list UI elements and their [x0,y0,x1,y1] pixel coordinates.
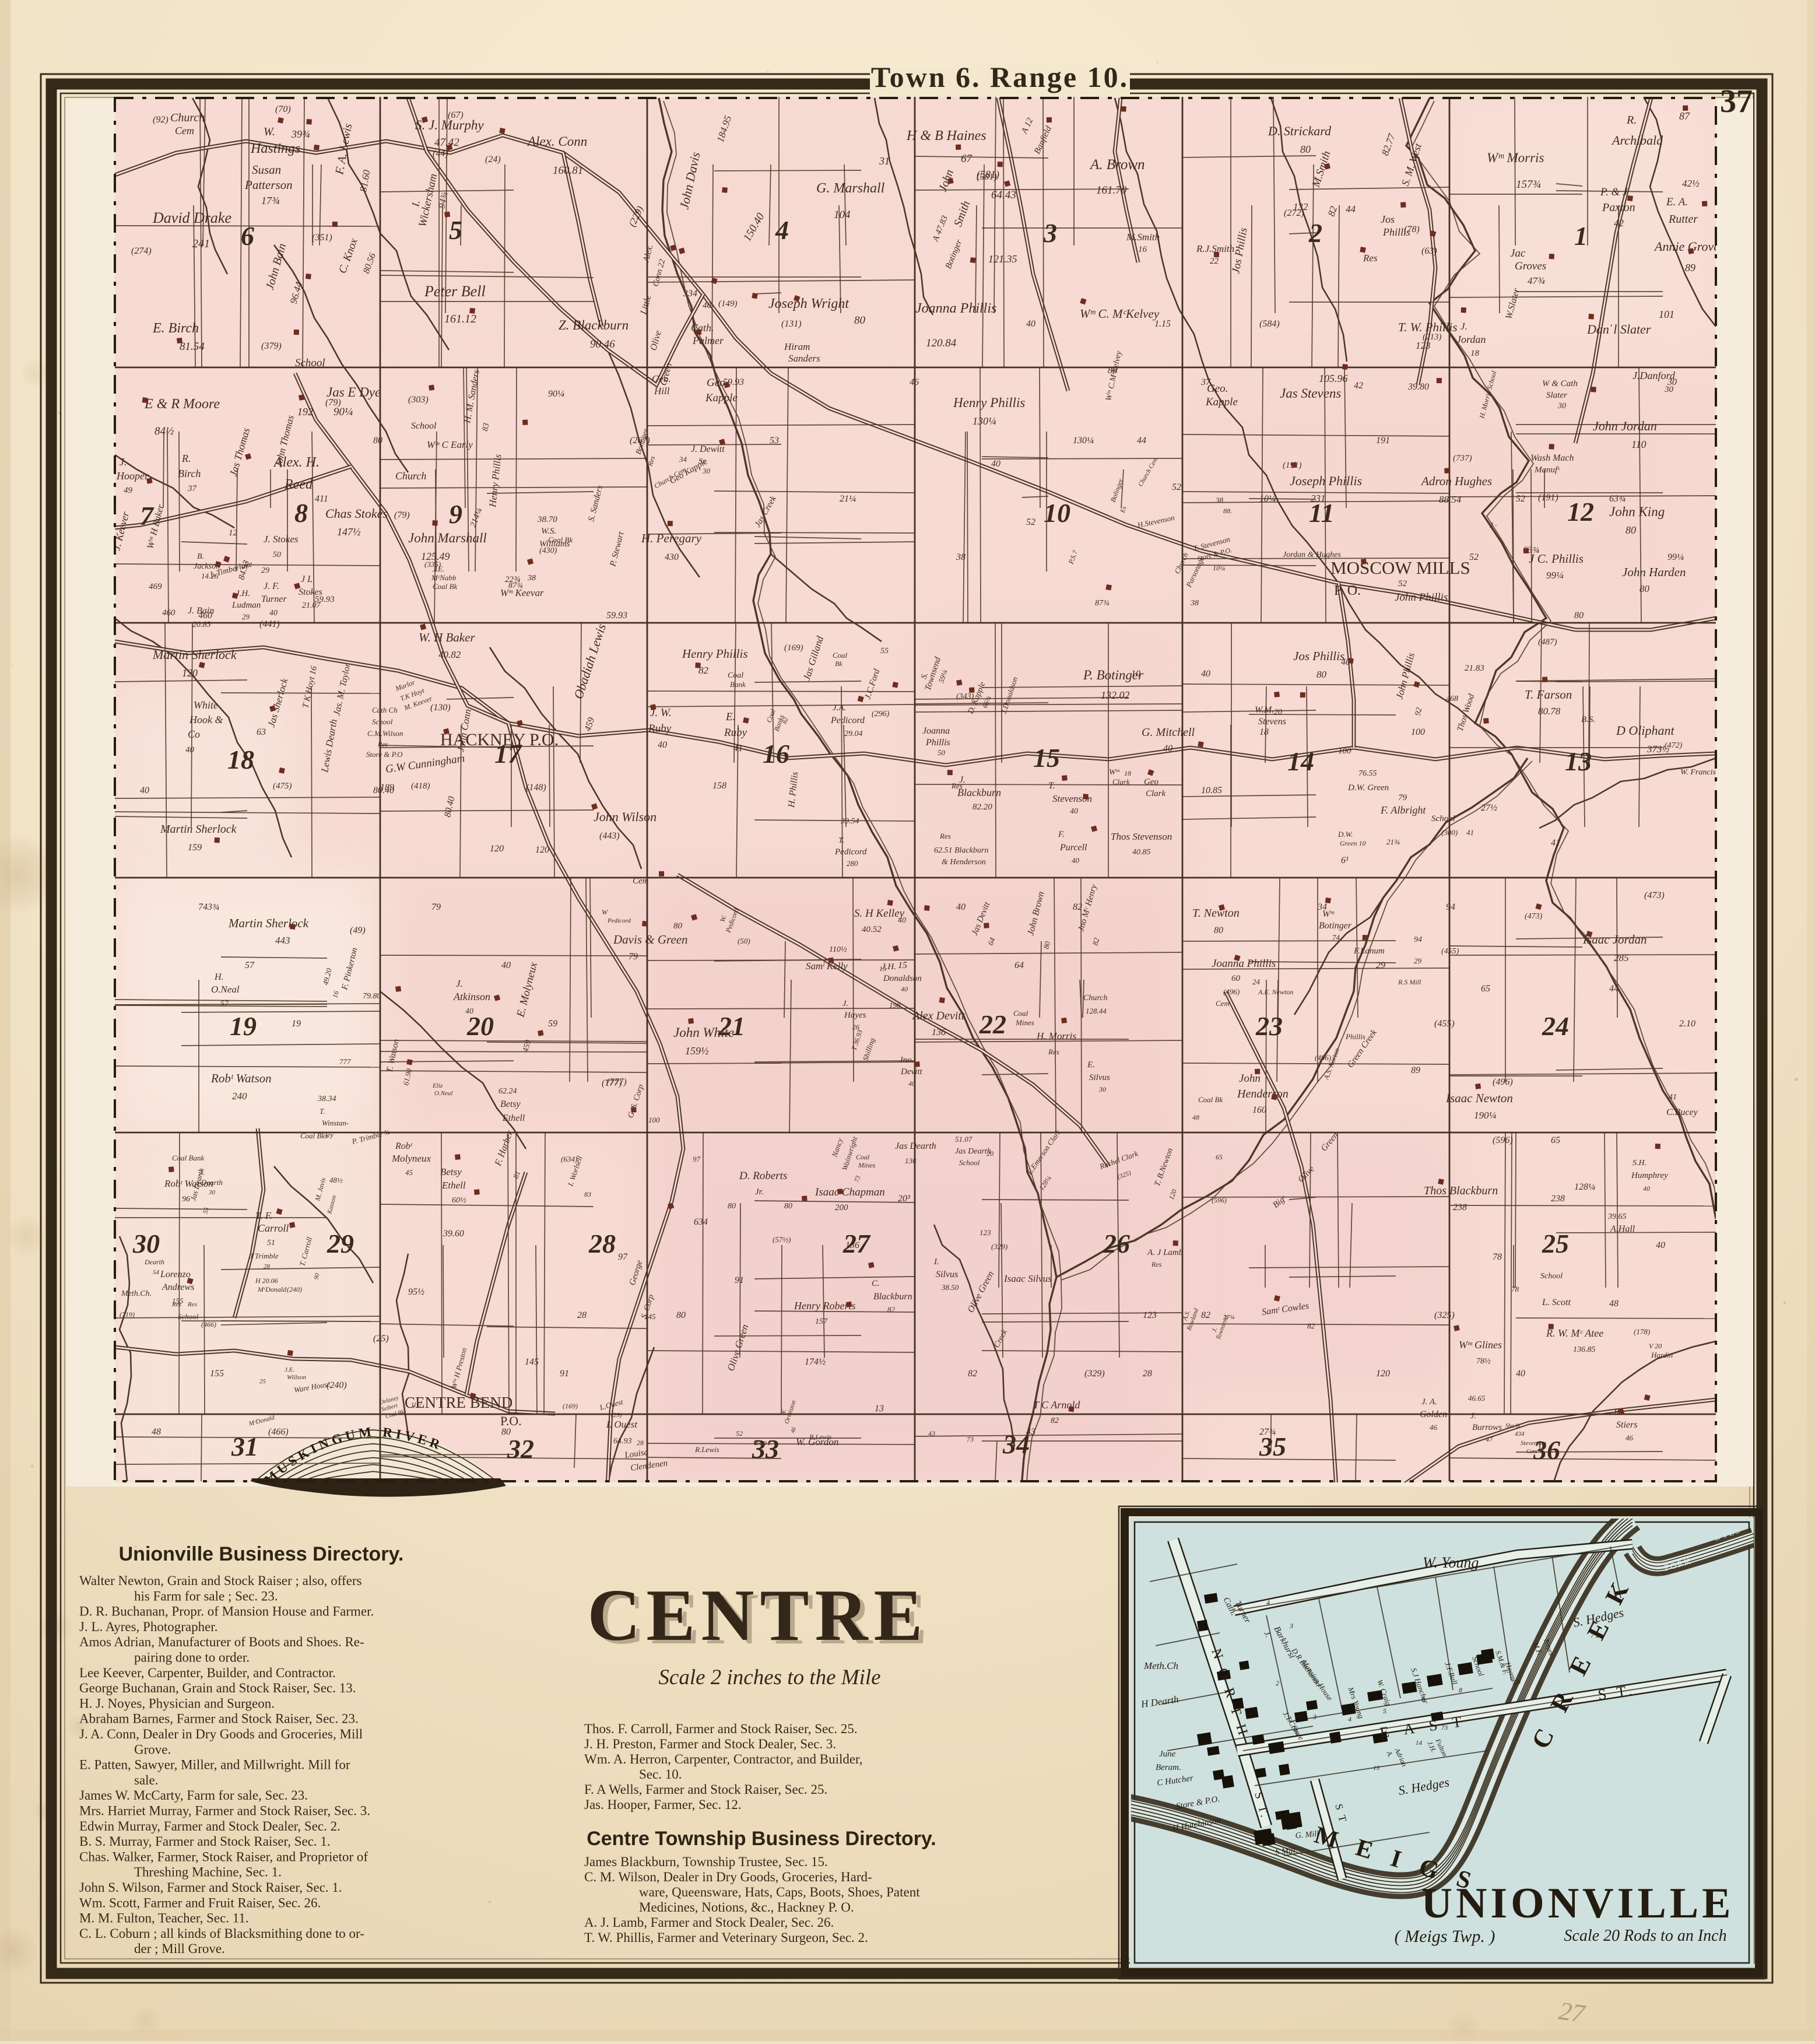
svg-text:62.51 Blackburn: 62.51 Blackburn [934,846,988,855]
svg-text:W.: W. [264,125,275,138]
svg-text:4: 4 [775,215,789,245]
svg-text:16: 16 [763,739,789,769]
svg-text:15: 15 [1033,743,1060,773]
svg-text:C.: C. [872,1279,880,1288]
svg-text:100: 100 [648,1116,660,1124]
svg-text:3: 3 [1312,1713,1317,1721]
svg-text:59: 59 [548,1019,557,1029]
svg-text:80: 80 [1317,669,1327,680]
svg-text:39¾: 39¾ [291,128,310,140]
svg-text:120: 120 [182,667,198,679]
svg-text:104: 104 [834,209,851,221]
svg-text:Cem: Cem [633,876,649,886]
svg-text:John King: John King [1609,504,1665,519]
svg-text:160: 160 [1252,1105,1266,1115]
svg-text:R.Lewis: R.Lewis [694,1445,719,1454]
svg-text:Town 6. Range 10.: Town 6. Range 10. [871,61,1129,93]
svg-text:51.07: 51.07 [955,1135,973,1144]
svg-text:14: 14 [1287,746,1314,776]
svg-text:Jas Stevens: Jas Stevens [1280,386,1341,401]
svg-text:(325): (325) [1434,1310,1455,1320]
svg-text:8: 8 [294,498,308,528]
svg-text:29: 29 [327,1229,354,1258]
svg-text:Chas Stokes: Chas Stokes [325,506,388,521]
svg-text:J.: J. [1461,321,1468,332]
svg-text:P. & J: P. & J [1600,186,1628,198]
svg-text:157¾: 157¾ [1516,178,1541,191]
svg-text:136: 136 [932,1028,946,1037]
svg-text:19: 19 [292,1019,301,1029]
svg-text:Hooper: Hooper [116,470,149,482]
svg-text:54: 54 [153,1269,160,1276]
svg-text:38.70: 38.70 [537,515,557,524]
svg-text:J.: J. [120,456,127,468]
svg-text:(475): (475) [273,781,292,791]
svg-text:W. Young: W. Young [1423,1554,1479,1571]
svg-text:136: 136 [905,1156,917,1165]
svg-text:80.40: 80.40 [373,786,394,795]
svg-text:40.82: 40.82 [438,649,461,660]
svg-text:J.A.: J.A. [833,703,846,713]
svg-text:8: 8 [1459,1686,1462,1694]
svg-text:(44): (44) [433,149,448,159]
svg-text:80: 80 [676,1310,686,1320]
svg-text:48: 48 [1192,1113,1199,1121]
svg-text:(737): (737) [1453,454,1472,463]
svg-text:48½: 48½ [329,1176,343,1184]
svg-text:Martin Sherlock: Martin Sherlock [152,647,237,662]
svg-text:Henry Roberts: Henry Roberts [794,1300,855,1312]
svg-text:91: 91 [560,1369,569,1379]
svg-text:J.H.: J.H. [236,589,250,598]
svg-text:Threshing Machine, Sec. 1.: Threshing Machine, Sec. 1. [134,1865,282,1880]
svg-text:40: 40 [1070,807,1078,816]
svg-text:64.43: 64.43 [991,189,1016,201]
svg-text:743¾: 743¾ [198,902,219,912]
svg-text:Grove.: Grove. [134,1742,171,1756]
svg-text:Patterson: Patterson [244,178,293,192]
svg-text:430: 430 [665,552,679,562]
svg-text:123: 123 [1143,1310,1157,1320]
svg-text:40: 40 [901,985,908,993]
svg-text:Mrs. Harriet Murray, Farmer an: Mrs. Harriet Murray, Farmer and Stock Ra… [79,1804,370,1818]
svg-text:Thos Stevenson: Thos Stevenson [1111,831,1172,842]
svg-text:42½: 42½ [1682,178,1700,189]
svg-text:136: 136 [845,1240,859,1250]
svg-text:1: 1 [1574,221,1588,251]
svg-text:110½: 110½ [829,945,847,954]
svg-text:40: 40 [1026,319,1035,329]
svg-text:240: 240 [232,1091,247,1102]
svg-text:80: 80 [784,1202,792,1211]
svg-text:10: 10 [1044,498,1070,528]
svg-text:Coal: Coal [856,1153,870,1161]
svg-text:Isaac Jordan: Isaac Jordan [1582,932,1647,946]
svg-text:18: 18 [1124,769,1131,777]
svg-text:28: 28 [264,1263,271,1270]
svg-text:18: 18 [1470,349,1480,358]
svg-text:A. J Lamb: A. J Lamb [1147,1248,1184,1257]
svg-text:157: 157 [815,1317,828,1326]
svg-text:Wm. A. Herron, Carpenter, Cont: Wm. A. Herron, Carpenter, Contractor, an… [584,1752,863,1766]
svg-text:31: 31 [231,1432,258,1461]
svg-text:60½: 60½ [452,1196,466,1205]
svg-text:P. O.: P. O. [1334,583,1361,598]
svg-text:100: 100 [1411,727,1425,737]
svg-text:Hardin: Hardin [1651,1351,1673,1359]
svg-text:pairing done to order.: pairing done to order. [134,1650,250,1665]
svg-text:Res: Res [1151,1260,1162,1268]
svg-text:Dearth: Dearth [144,1258,164,1266]
svg-text:J. H. Preston, Farmer and Stoc: J. H. Preston, Farmer and Stock Dealer, … [584,1737,836,1751]
svg-text:A. Brown: A. Brown [1089,157,1145,173]
svg-text:90¼: 90¼ [333,406,353,418]
svg-text:Davis & Green: Davis & Green [613,932,688,946]
svg-text:School: School [1540,1272,1563,1281]
svg-text:32: 32 [507,1434,534,1464]
svg-text:MᶜDonald: MᶜDonald [257,1285,287,1293]
svg-text:128¼: 128¼ [1574,1182,1595,1192]
svg-text:Carroll: Carroll [258,1222,289,1234]
svg-text:Pedicord: Pedicord [834,847,867,857]
svg-text:S Mill: S Mill [1275,1846,1296,1857]
svg-text:46: 46 [1626,1433,1634,1442]
svg-text:F.: F. [1058,830,1065,839]
svg-text:4: 4 [1266,1598,1270,1607]
svg-text:J.H.: J.H. [882,962,896,972]
svg-text:Jordan & Hughes: Jordan & Hughes [1283,551,1341,559]
svg-text:E & R Moore: E & R Moore [144,397,220,412]
svg-text:27¾: 27¾ [1259,1427,1276,1437]
svg-text:174½: 174½ [805,1357,826,1367]
svg-text:(79): (79) [325,398,341,408]
svg-text:Birch: Birch [178,468,201,479]
svg-text:John White: John White [673,1025,734,1040]
svg-text:101: 101 [1659,308,1674,320]
svg-text:Martin Sherlock: Martin Sherlock [228,916,309,930]
svg-text:(379): (379) [261,341,282,351]
svg-text:82: 82 [1073,902,1082,912]
svg-text:28: 28 [588,1229,616,1258]
svg-text:Donaldson: Donaldson [883,974,922,983]
svg-text:37: 37 [1200,377,1211,387]
svg-text:Ethell: Ethell [502,1113,525,1123]
svg-text:(272): (272) [1284,208,1304,218]
svg-text:20.85: 20.85 [192,620,211,629]
svg-text:82: 82 [1201,1310,1210,1320]
svg-text:80: 80 [728,1202,736,1211]
svg-text:121.35: 121.35 [988,253,1017,265]
svg-text:June: June [1159,1750,1176,1759]
svg-text:130¼: 130¼ [1073,436,1094,446]
svg-text:411: 411 [315,494,328,504]
svg-text:S. H Kelley: S. H Kelley [854,907,905,920]
svg-text:J L: J L [301,574,313,584]
svg-text:460: 460 [198,611,212,620]
svg-text:F.Lanum: F.Lanum [1353,946,1385,956]
svg-text:120: 120 [1376,1369,1390,1379]
svg-text:334: 334 [683,289,697,299]
svg-text:42: 42 [1354,381,1363,391]
svg-text:Sanders: Sanders [788,353,820,364]
svg-text:James Blackburn, Township Trus: James Blackburn, Township Trustee, Sec. … [584,1854,828,1869]
svg-text:Medicines, Notions, &c., Hackn: Medicines, Notions, &c., Hackney P. O. [639,1900,854,1915]
svg-text:John S. Wilson, Farmer and Sto: John S. Wilson, Farmer and Stock Raiser,… [79,1880,342,1895]
svg-text:Ruby: Ruby [724,727,747,739]
svg-text:B. S. Murray, Farmer and Stock: B. S. Murray, Farmer and Stock Raiser, S… [79,1834,331,1849]
svg-text:21¼: 21¼ [840,494,856,504]
svg-text:(473): (473) [1644,890,1665,900]
svg-text:R.: R. [181,453,191,464]
svg-text:Kapple: Kapple [705,392,738,404]
svg-text:R. W. Mᶜ Atee: R. W. Mᶜ Atee [1546,1327,1603,1339]
svg-text:2: 2 [1276,1679,1279,1687]
svg-text:40: 40 [185,745,195,755]
svg-text:30: 30 [1098,1085,1106,1093]
svg-text:Ruby: Ruby [648,723,672,735]
svg-text:81.54: 81.54 [180,341,205,353]
svg-text:(274): (274) [131,246,152,256]
svg-text:Robᵗ: Robᵗ [395,1141,413,1151]
svg-text:Isaac Silvus: Isaac Silvus [1003,1273,1052,1284]
svg-text:Clark: Clark [1146,789,1166,798]
svg-text:39.65: 39.65 [1607,1212,1627,1221]
svg-text:4: 4 [1348,1715,1351,1723]
svg-text:198: 198 [889,1001,901,1009]
svg-text:Res: Res [1048,1047,1059,1056]
svg-text:12: 12 [1567,497,1594,527]
svg-text:57: 57 [245,960,255,970]
svg-text:110: 110 [1631,439,1647,450]
svg-text:Hiram: Hiram [784,341,810,352]
svg-text:MᶜNabb: MᶜNabb [431,573,457,582]
svg-text:Coal Bk: Coal Bk [433,582,457,591]
svg-text:9: 9 [449,499,462,529]
svg-text:21¾: 21¾ [1386,837,1400,846]
svg-text:C.M.Wilson: C.M.Wilson [367,729,403,738]
svg-text:I.: I. [933,1257,939,1267]
svg-text:161.70: 161.70 [1096,184,1127,197]
svg-text:79: 79 [1398,793,1407,802]
svg-text:Coal Bks: Coal Bks [300,1131,328,1140]
svg-text:Wᵐ: Wᵐ [1109,768,1120,777]
svg-text:159: 159 [188,843,202,853]
svg-text:460: 460 [162,608,175,618]
svg-text:(472): (472) [1665,741,1683,750]
svg-text:2: 2 [1308,218,1322,248]
svg-text:Golden: Golden [1420,1410,1447,1419]
svg-text:(79): (79) [394,510,410,520]
svg-text:28: 28 [637,1439,644,1447]
svg-text:192: 192 [297,406,313,418]
svg-text:J C. Phillis: J C. Phillis [1529,552,1584,566]
svg-text:John: John [1239,1072,1261,1085]
svg-text:School: School [295,357,325,369]
svg-text:91: 91 [735,1275,744,1285]
svg-text:22: 22 [1210,257,1219,266]
svg-text:Jr.: Jr. [755,1187,764,1197]
svg-text:Church: Church [170,111,205,124]
svg-text:40: 40 [501,960,511,970]
svg-text:Thos Blackburn: Thos Blackburn [1424,1184,1498,1197]
svg-text:Res: Res [187,1301,197,1308]
svg-text:132.02: 132.02 [1101,689,1130,701]
svg-text:W.S.: W.S. [541,527,556,536]
svg-text:M. M. Fulton, Teacher, Sec. 11: M. M. Fulton, Teacher, Sec. 11. [79,1911,249,1926]
svg-text:Willson: Willson [287,1374,307,1381]
svg-text:Scale 20 Rods to an Inch: Scale 20 Rods to an Inch [1564,1927,1726,1945]
svg-text:94: 94 [1446,902,1455,912]
svg-text:18: 18 [227,745,254,774]
svg-text:Stevens: Stevens [1258,717,1286,727]
svg-text:27¾: 27¾ [1223,1314,1234,1321]
svg-text:Scale 2 inches to the Mile: Scale 2 inches to the Mile [658,1666,880,1689]
svg-text:26: 26 [1103,1229,1130,1258]
svg-text:40: 40 [1516,1369,1525,1379]
svg-text:Cath Ch: Cath Ch [372,706,398,714]
svg-text:40: 40 [991,459,1000,469]
svg-text:Lee Keever, Carpenter, Builder: Lee Keever, Carpenter, Builder, and Cont… [79,1666,336,1680]
svg-text:David Drake: David Drake [152,209,231,226]
svg-text:J ·: J · [1490,521,1497,530]
svg-text:Cem: Cem [1526,1449,1537,1455]
svg-text:Coal: Coal [728,671,743,680]
svg-text:39.80: 39.80 [1407,382,1429,392]
svg-text:82: 82 [968,1369,977,1379]
svg-text:Green 10: Green 10 [1340,839,1366,847]
svg-text:H. J. Noyes, Physician and Sur: H. J. Noyes, Physician and Surgeon. [79,1696,275,1710]
svg-text:87¾: 87¾ [508,581,523,590]
svg-text:40.85: 40.85 [1132,848,1151,857]
svg-text:120.84: 120.84 [926,337,957,349]
svg-text:99¼: 99¼ [1546,570,1564,581]
svg-text:47: 47 [1486,1435,1493,1443]
svg-text:sale.: sale. [134,1773,159,1787]
svg-text:Botinger: Botinger [1319,921,1352,931]
svg-text:Wᵐ Morris: Wᵐ Morris [1487,150,1544,165]
svg-text:46: 46 [910,377,919,387]
svg-text:Bank: Bank [730,680,746,689]
svg-text:James W. McCarty, Farm for sal: James W. McCarty, Farm for sale, Sec. 23… [79,1788,308,1803]
svg-text:T. F.: T. F. [255,1210,272,1221]
svg-text:9: 9 [1517,1678,1521,1686]
svg-text:52: 52 [1026,517,1035,527]
svg-text:Devitt: Devitt [900,1067,922,1077]
svg-text:6: 6 [241,221,254,251]
svg-text:159½: 159½ [685,1045,709,1057]
svg-text:Sha St: Sha St [1505,1423,1521,1429]
svg-text:Isaac Chapman: Isaac Chapman [815,1186,885,1198]
svg-text:88.: 88. [1223,507,1232,515]
svg-text:40: 40 [1201,669,1210,679]
svg-text:37: 37 [1720,83,1753,120]
svg-text:Res: Res [171,1301,181,1308]
svg-text:(240): (240) [327,1380,347,1390]
svg-text:John Harden: John Harden [1622,565,1686,579]
svg-text:Hook &: Hook & [189,714,223,725]
svg-text:10.85: 10.85 [1201,786,1222,795]
svg-text:40: 40 [1656,1240,1665,1250]
svg-text:School: School [372,717,393,726]
svg-text:30: 30 [208,1189,216,1196]
svg-text:G. Mitchell: G. Mitchell [1142,726,1195,739]
svg-text:24: 24 [1252,977,1261,986]
svg-text:Manufˢ: Manufˢ [1534,465,1560,475]
svg-text:H. Peregary: H. Peregary [641,531,702,545]
svg-text:T.: T. [838,836,844,845]
svg-text:Cem: Cem [175,125,194,136]
svg-text:(335): (335) [424,560,441,569]
svg-text:W. H Baker: W. H Baker [419,630,475,644]
svg-text:& Henderson: & Henderson [942,858,986,867]
svg-text:Sec. 10.: Sec. 10. [639,1767,682,1782]
svg-text:H. Morris: H. Morris [1036,1030,1076,1042]
svg-text:161.12: 161.12 [444,313,476,325]
svg-text:41: 41 [733,744,743,753]
svg-text:10: 10 [1131,669,1140,679]
svg-text:48: 48 [1609,1299,1619,1309]
svg-text:Unionville Business Directory.: Unionville Business Directory. [119,1543,404,1565]
svg-text:(596): (596) [1493,1135,1513,1145]
svg-text:80: 80 [1108,366,1117,376]
svg-text:40: 40 [908,1079,915,1088]
svg-text:C. M. Wilson, Dealer in Dry Go: C. M. Wilson, Dealer in Dry Goods, Groce… [584,1870,872,1884]
svg-text:64.93: 64.93 [613,1437,632,1446]
svg-text:(92): (92) [153,115,168,125]
svg-text:Clark: Clark [1112,777,1130,786]
svg-text:J. F.: J. F. [264,581,279,591]
svg-text:241: 241 [192,237,210,250]
svg-text:(70): (70) [275,104,291,114]
svg-text:Jas Dearth: Jas Dearth [955,1147,991,1156]
svg-text:Chas. Walker, Farmer, Stock Ra: Chas. Walker, Farmer, Stock Raiser, and … [79,1849,368,1864]
svg-text:Peter Bell: Peter Bell [424,283,486,300]
svg-text:40: 40 [1072,856,1080,865]
svg-text:Isaac Newton: Isaac Newton [1445,1091,1513,1105]
svg-text:W & Cath: W & Cath [1542,379,1578,388]
svg-text:O.Neal: O.Neal [434,1090,452,1097]
svg-text:J. A. Conn, Dealer in Dry Good: J. A. Conn, Dealer in Dry Goods and Groc… [79,1727,363,1741]
svg-text:40: 40 [140,786,149,795]
svg-text:School: School [959,1158,980,1167]
svg-text:(329): (329) [1084,1369,1105,1379]
svg-text:CENTRE BEND: CENTRE BEND [405,1394,512,1411]
svg-text:Paxton: Paxton [1602,201,1635,214]
svg-text:100: 100 [1338,746,1351,756]
svg-text:Susan: Susan [252,163,281,177]
svg-text:Betsy: Betsy [440,1166,462,1177]
svg-text:145: 145 [644,1312,656,1321]
svg-text:Res: Res [1363,253,1378,264]
svg-text:(443): (443) [599,831,620,841]
svg-text:80: 80 [854,314,866,327]
svg-text:F. Albright: F. Albright [1380,804,1426,816]
svg-text:Mines: Mines [1015,1018,1034,1027]
svg-text:90¼: 90¼ [548,389,564,399]
svg-text:200: 200 [835,1203,848,1212]
svg-text:28: 28 [1143,1369,1152,1379]
svg-text:Wm. Scott, Farmer and Fruit Ra: Wm. Scott, Farmer and Fruit Raiser, Sec.… [79,1895,321,1910]
svg-text:Hayes: Hayes [844,1011,866,1020]
svg-text:H 20.06: H 20.06 [255,1277,278,1285]
svg-text:25: 25 [259,1378,266,1385]
svg-text:J.: J. [456,978,463,989]
svg-text:38: 38 [1190,599,1199,608]
svg-text:17¾: 17¾ [261,195,280,206]
svg-text:J.: J. [842,1000,848,1008]
svg-text:37: 37 [187,484,198,493]
svg-text:44: 44 [1137,436,1146,446]
